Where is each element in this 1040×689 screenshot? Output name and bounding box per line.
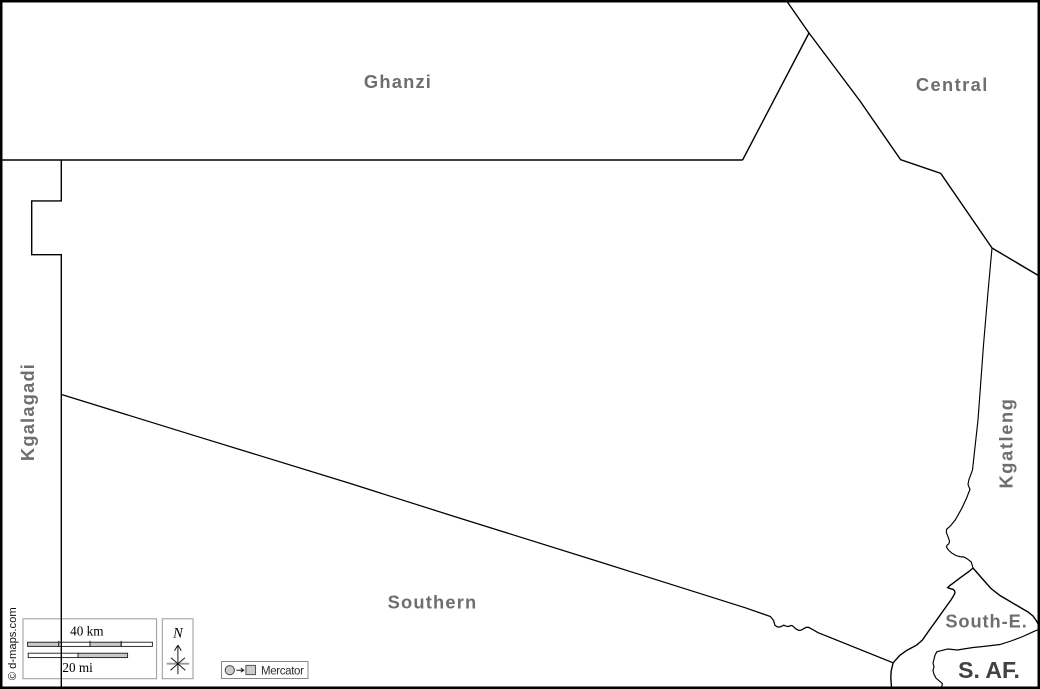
svg-text:South-E.: South-E. [945, 610, 1027, 631]
svg-text:Ghanzi: Ghanzi [364, 71, 432, 92]
svg-text:S. AF.: S. AF. [958, 657, 1020, 683]
svg-text:Mercator: Mercator [261, 665, 304, 677]
svg-text:Kgatleng: Kgatleng [996, 397, 1017, 488]
svg-text:© d-maps.com: © d-maps.com [7, 607, 19, 680]
svg-text:N: N [172, 626, 184, 642]
svg-text:20 mi: 20 mi [62, 660, 93, 675]
svg-text:Kgalagadi: Kgalagadi [17, 363, 38, 461]
svg-text:40 km: 40 km [70, 624, 104, 639]
svg-text:Southern: Southern [388, 592, 478, 613]
svg-text:Central: Central [916, 74, 989, 95]
